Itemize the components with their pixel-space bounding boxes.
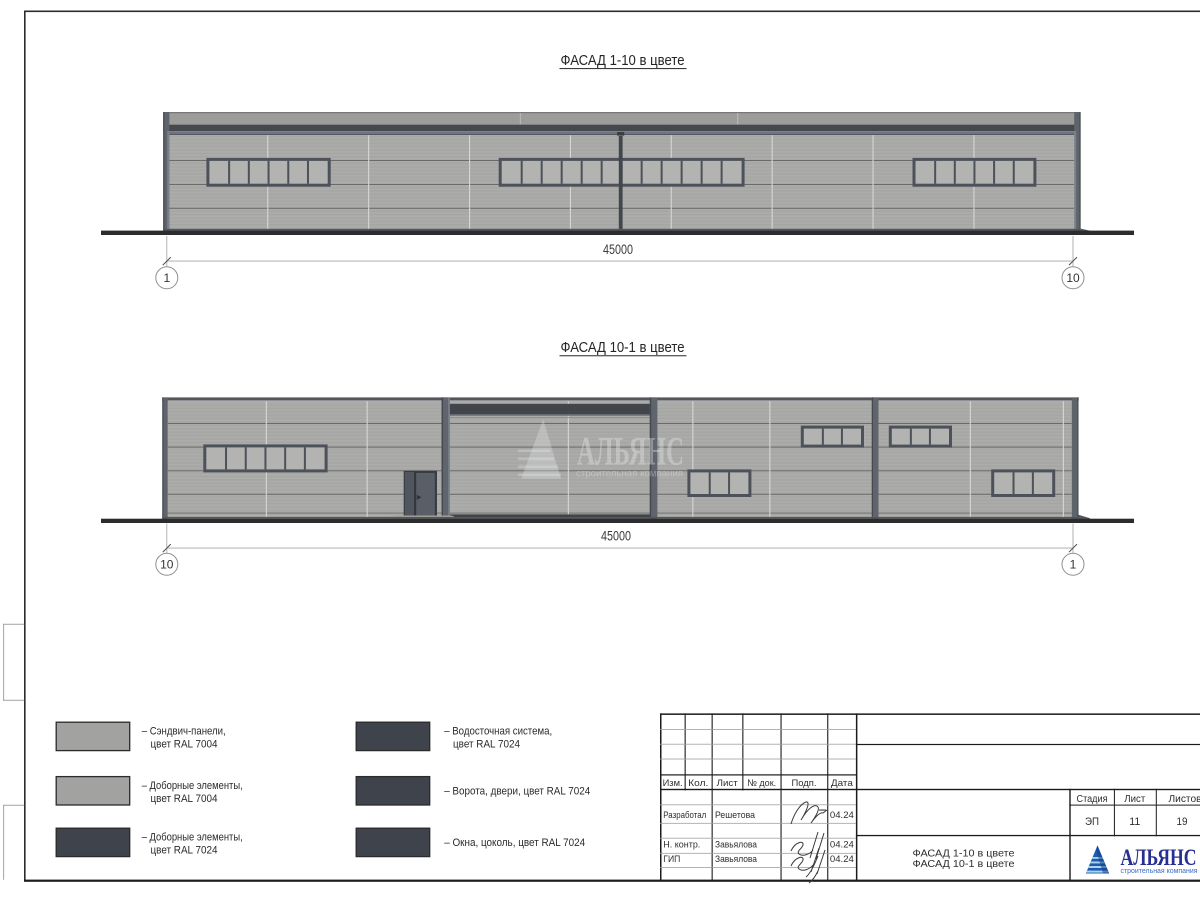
svg-text:цвет RAL 7024: цвет RAL 7024	[151, 845, 218, 857]
svg-text:Дата: Дата	[831, 778, 854, 789]
svg-text:Н. контр.: Н. контр.	[663, 840, 700, 851]
svg-text:04.24: 04.24	[830, 840, 855, 851]
svg-text:ЭП: ЭП	[1085, 816, 1099, 828]
svg-text:45000: 45000	[601, 528, 631, 543]
svg-text:– Доборные элементы,: – Доборные элементы,	[142, 780, 243, 792]
svg-text:цвет RAL 7024: цвет RAL 7024	[453, 739, 520, 751]
svg-text:Стадия: Стадия	[1077, 794, 1108, 805]
svg-text:Завьялова: Завьялова	[715, 854, 758, 865]
svg-text:11: 11	[1129, 816, 1140, 828]
svg-text:19: 19	[1177, 816, 1188, 828]
svg-text:Лист: Лист	[1124, 794, 1145, 805]
svg-text:Лист: Лист	[717, 778, 739, 789]
svg-text:04.24: 04.24	[830, 810, 855, 821]
svg-text:строительная компания: строительная компания	[576, 468, 683, 480]
svg-text:– Ворота, двери, цвет RAL 7024: – Ворота, двери, цвет RAL 7024	[444, 786, 590, 798]
svg-text:– Доборные элементы,: – Доборные элементы,	[142, 832, 243, 844]
svg-text:цвет RAL 7004: цвет RAL 7004	[151, 739, 218, 751]
svg-text:строительная компания: строительная компания	[1121, 868, 1198, 875]
svg-text:Разработал: Разработал	[663, 810, 706, 821]
svg-text:ГИП: ГИП	[663, 854, 680, 865]
svg-text:ФАСАД 10-1 в цвете: ФАСАД 10-1 в цвете	[913, 859, 1015, 870]
svg-text:ФАСАД 10-1 в цвете: ФАСАД 10-1 в цвете	[561, 339, 685, 356]
svg-text:ФАСАД 1-10 в цвете: ФАСАД 1-10 в цвете	[561, 52, 685, 69]
svg-text:– Окна, цоколь, цвет RAL 7024: – Окна, цоколь, цвет RAL 7024	[444, 837, 585, 849]
svg-text:Кол.: Кол.	[688, 778, 708, 789]
svg-text:Завьялова: Завьялова	[715, 840, 758, 851]
svg-text:№ док.: № док.	[747, 778, 776, 789]
svg-text:цвет RAL 7004: цвет RAL 7004	[151, 793, 218, 805]
svg-text:Изм.: Изм.	[663, 778, 683, 789]
svg-text:Решетова: Решетова	[715, 810, 756, 821]
svg-text:1: 1	[163, 271, 170, 285]
svg-text:04.24: 04.24	[830, 854, 855, 865]
svg-text:Листов: Листов	[1169, 794, 1200, 805]
svg-text:ФАСАД 1-10 в цвете: ФАСАД 1-10 в цвете	[913, 849, 1015, 860]
svg-text:– Сэндвич-панели,: – Сэндвич-панели,	[142, 726, 226, 738]
svg-text:10: 10	[160, 558, 174, 572]
svg-text:1: 1	[1070, 558, 1077, 572]
svg-text:АЛЬЯНС: АЛЬЯНС	[1121, 845, 1197, 871]
svg-text:– Водосточная система,: – Водосточная система,	[444, 726, 552, 738]
svg-text:45000: 45000	[603, 242, 633, 257]
svg-text:10: 10	[1066, 271, 1080, 285]
svg-text:Подп.: Подп.	[792, 778, 817, 789]
